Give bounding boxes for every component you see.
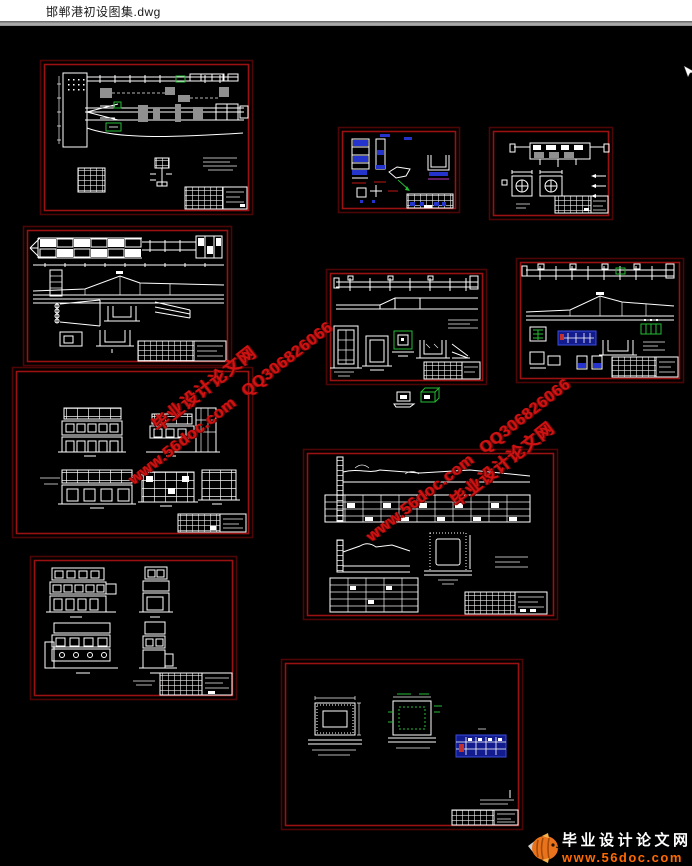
- application-window: 毕业设计论文网 www.56doc.comQQ306826066 www.56d…: [0, 0, 692, 866]
- drawing-canvas[interactable]: 毕业设计论文网 www.56doc.comQQ306826066 www.56d…: [0, 0, 692, 866]
- sheet-building-elevations-b[interactable]: [31, 557, 237, 700]
- mouse-cursor: [683, 66, 692, 80]
- sheet-longitudinal-section[interactable]: [304, 450, 558, 620]
- document-title: 邯郸港初设图集.dwg: [46, 3, 161, 20]
- sheet-structure-sections[interactable]: [490, 128, 613, 220]
- logo-site-url: www.56doc.com: [562, 851, 692, 864]
- site-logo[interactable]: 毕业设计论文网 www.56doc.com: [526, 830, 692, 866]
- sheet-trestle-profile[interactable]: [517, 259, 684, 383]
- cad-drawing-area: [0, 0, 692, 866]
- logo-site-name: 毕业设计论文网: [562, 833, 692, 848]
- sheet-equipment-details[interactable]: [339, 128, 460, 213]
- floating-detail-icons: [394, 388, 439, 407]
- fish-logo-icon: [526, 832, 562, 864]
- sheet-conveyor-profile[interactable]: [327, 270, 487, 385]
- sheet-site-general-plan[interactable]: [41, 61, 253, 215]
- sheet-building-elevations-a[interactable]: [13, 368, 253, 538]
- title-bar: 邯郸港初设图集.dwg: [0, 0, 692, 21]
- sheet-berth-plan-profile[interactable]: [24, 227, 232, 366]
- sheet-culvert-details[interactable]: [282, 660, 523, 830]
- titlebar-separator: [0, 21, 692, 26]
